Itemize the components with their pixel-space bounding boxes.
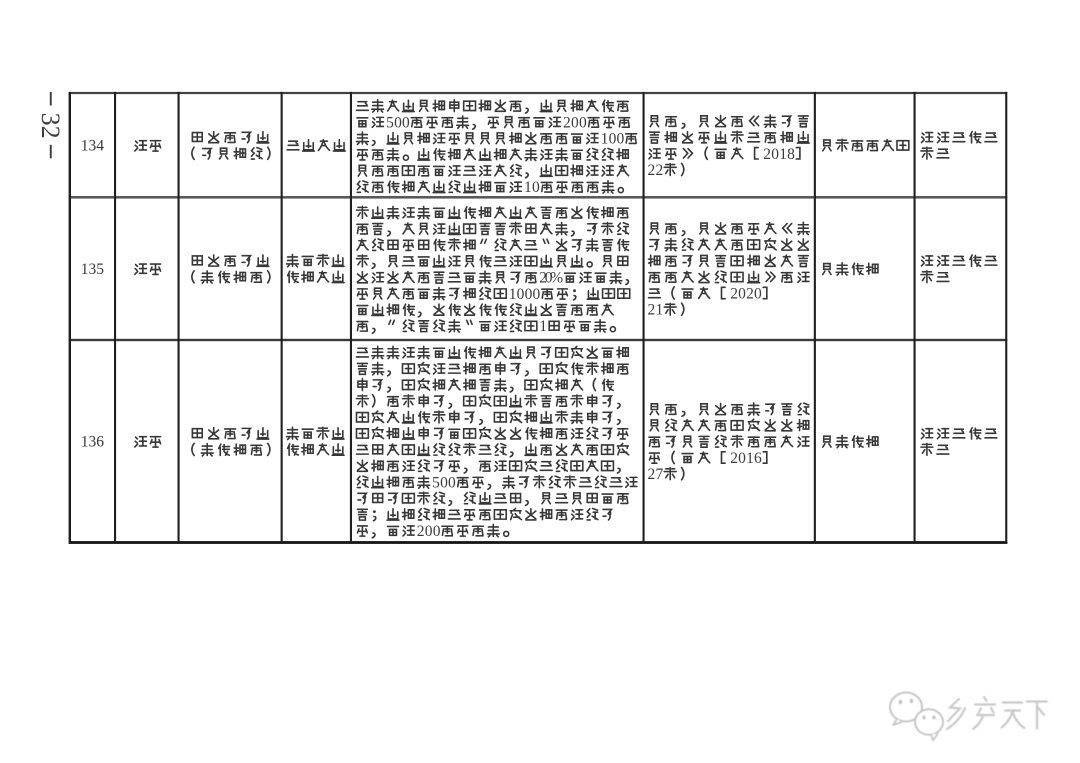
svg-text:21: 21 bbox=[648, 302, 664, 319]
svg-text:136: 136 bbox=[81, 434, 105, 451]
svg-text:27: 27 bbox=[648, 466, 664, 483]
svg-text:2020: 2020 bbox=[730, 286, 762, 303]
svg-text:20%: 20% bbox=[539, 270, 563, 287]
svg-text:32: 32 bbox=[36, 113, 65, 139]
svg-text:2016: 2016 bbox=[730, 450, 762, 467]
svg-text:1: 1 bbox=[539, 318, 547, 335]
svg-text:1000: 1000 bbox=[509, 286, 541, 303]
svg-text:200: 200 bbox=[563, 114, 587, 131]
svg-text:22: 22 bbox=[648, 162, 664, 179]
svg-text:2018: 2018 bbox=[763, 146, 795, 163]
svg-text:134: 134 bbox=[81, 138, 105, 155]
svg-text:500: 500 bbox=[386, 114, 410, 131]
svg-text:500: 500 bbox=[432, 474, 456, 491]
svg-text:10: 10 bbox=[524, 179, 540, 196]
svg-text:135: 135 bbox=[81, 261, 105, 278]
svg-text:100: 100 bbox=[601, 131, 625, 148]
svg-text:200: 200 bbox=[417, 523, 441, 540]
